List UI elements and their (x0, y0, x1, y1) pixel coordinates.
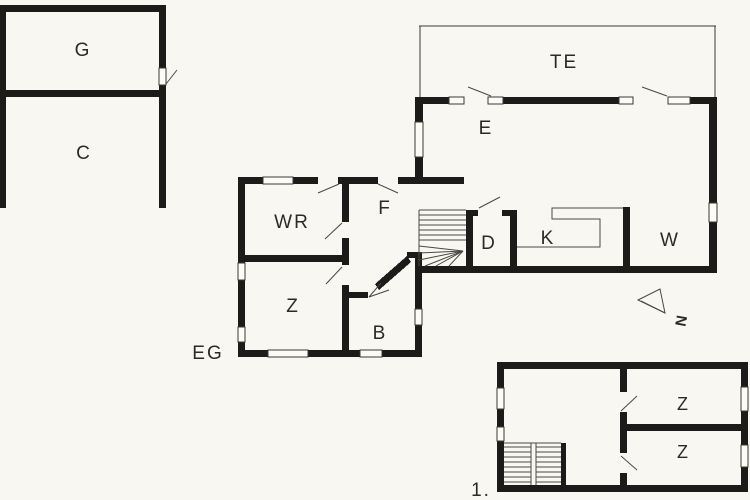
floor-plan-drawing: N (0, 0, 750, 500)
room-label-c: C (76, 143, 92, 164)
room-label-te: TE (550, 52, 578, 73)
floor-plan-page: N (0, 0, 750, 500)
garage-door (159, 68, 177, 85)
room-label-b: B (373, 323, 388, 344)
main-block-windows (415, 122, 717, 222)
garage-block-walls (0, 5, 166, 208)
upper-floor-walls (497, 362, 748, 492)
room-label-z-lower: Z (677, 442, 689, 462)
room-label-g: G (75, 40, 92, 61)
wr-block-windows (238, 177, 422, 357)
room-label-e: E (479, 118, 494, 139)
north-letter: N (671, 314, 690, 328)
staircase-ground (419, 210, 466, 266)
room-label-k: K (541, 228, 556, 249)
staircase-upper (504, 443, 561, 485)
room-label-z: Z (286, 296, 300, 317)
room-label-z-upper: Z (677, 394, 689, 414)
floor-label-eg: EG (192, 343, 223, 364)
north-arrow-icon: N (638, 289, 690, 328)
room-label-wr: WR (274, 212, 310, 233)
floor-label-1: 1. (471, 480, 491, 500)
room-label-f: F (378, 198, 392, 219)
kitchen-counter (517, 208, 623, 247)
room-label-d: D (481, 233, 497, 254)
room-label-w: W (660, 230, 680, 251)
